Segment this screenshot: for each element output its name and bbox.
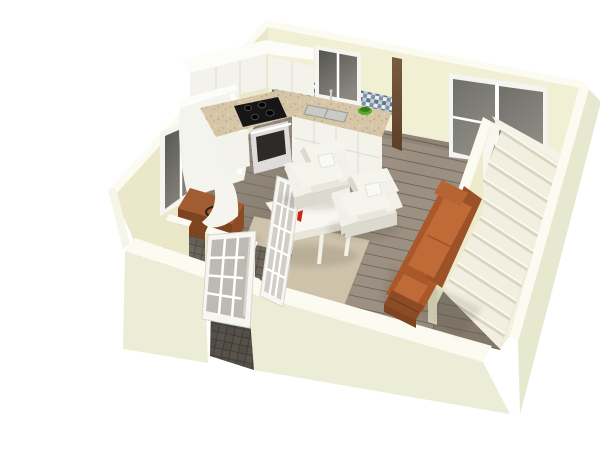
floor-plan-3d-render: 3D cutaway floor plan rendering of a stu…	[40, 16, 600, 439]
french-door	[202, 231, 256, 328]
fruit-bowl	[358, 107, 372, 115]
floor-plan-render: 3D cutaway floor plan rendering of a stu…	[40, 16, 600, 439]
wall-column	[392, 57, 402, 151]
